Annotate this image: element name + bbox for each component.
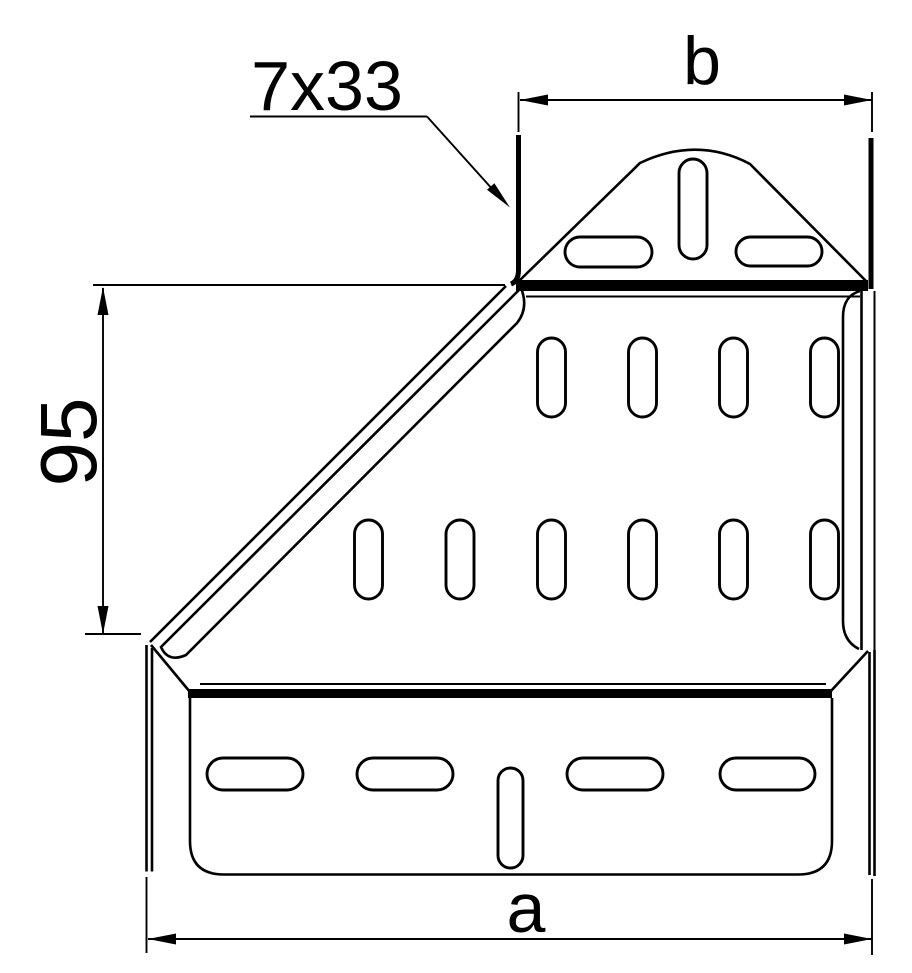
callout-arrowhead-icon [487, 183, 510, 207]
top-flange-slot-right [736, 237, 822, 266]
dimension-95: 95 [24, 285, 505, 634]
slot-center-vertical [498, 768, 523, 868]
dim-b-arrow-right-icon [844, 95, 872, 106]
mid-section [150, 286, 875, 658]
slot [811, 338, 839, 417]
bottom-slot-row [207, 758, 815, 868]
slot [567, 758, 663, 790]
dimension-95-label: 95 [24, 398, 113, 487]
dim-a-arrow-right-icon [844, 934, 872, 945]
bottom-right-corner-tick [830, 651, 868, 692]
slot [357, 758, 453, 790]
dimension-b: b [519, 23, 873, 132]
slot [811, 520, 839, 599]
top-flange [511, 135, 871, 297]
slot [629, 520, 657, 599]
dimension-a-label: a [507, 869, 546, 947]
drawing-canvas: 7x33 b 95 a [0, 0, 912, 973]
slot-callout-label: 7x33 [251, 47, 403, 125]
bottom-left-corner-tick [151, 645, 190, 692]
slot [207, 758, 303, 790]
mid-slot-row-lower [355, 520, 839, 599]
slot [720, 338, 748, 417]
slot [538, 338, 566, 417]
diagonal-wall-bar [161, 288, 524, 658]
dimension-b-label: b [683, 23, 721, 99]
slot [629, 338, 657, 417]
bottom-section [147, 645, 875, 876]
top-flange-slot-left [565, 237, 652, 267]
bottom-fold-line [188, 689, 832, 698]
dim-95-arrow-top-icon [98, 287, 109, 315]
slot [446, 520, 474, 599]
mid-slot-row-upper [538, 338, 839, 417]
slot [720, 758, 815, 790]
dim-b-arrow-left-icon [520, 95, 548, 106]
reducer-technical-drawing: 7x33 b 95 a [0, 0, 912, 973]
top-fold-line [516, 280, 868, 291]
slot [355, 520, 383, 599]
top-flange-left-edge [511, 135, 519, 284]
dim-95-arrow-bottom-icon [98, 606, 109, 634]
slot [538, 520, 566, 599]
dimension-a: a [147, 869, 873, 955]
mid-right-wall-bar [843, 291, 860, 649]
slot [720, 520, 748, 599]
callout-7x33: 7x33 [250, 47, 510, 208]
dim-a-arrow-left-icon [148, 934, 176, 945]
top-flange-slot-center [679, 159, 707, 259]
